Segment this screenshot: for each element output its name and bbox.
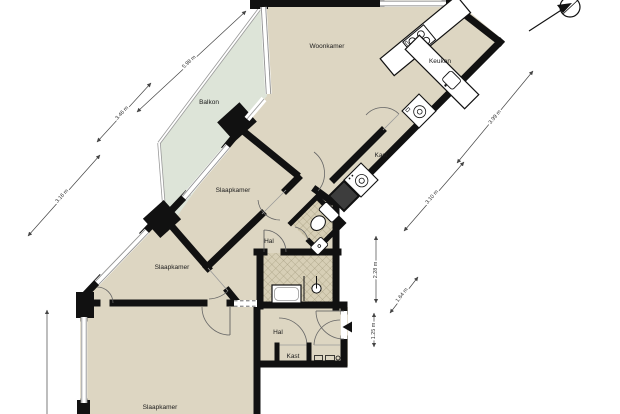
label-hal-lower: Hal: [273, 329, 283, 336]
label-keuken: Keuken: [429, 58, 451, 65]
north-compass-icon: [529, 0, 580, 31]
dim-kitchen-facade: 3.99 m: [488, 109, 504, 126]
floorplan-drawing: 5.98 m 3.46 m 3.16 m 3.99 m 3.10 m 2.28 …: [0, 0, 620, 414]
label-slaapkamer-mid: Slaapkamer: [216, 187, 252, 194]
dim-entrance-depth: 1.25 m: [371, 322, 377, 339]
label-kast-lower: Kast: [286, 353, 299, 360]
label-woonkamer: Woonkamer: [310, 43, 346, 50]
dashed-opening: [234, 300, 257, 307]
dim-corridor-side: 3.10 m: [425, 189, 441, 206]
label-slaapkamer-bottom: Slaapkamer: [143, 404, 179, 411]
dim-balcony-length: 5.98 m: [181, 54, 198, 70]
label-kast-upper: Kast: [374, 152, 387, 159]
dim-bathroom-depth: 2.28 m: [373, 261, 379, 278]
label-slaapkamer-left: Slaapkamer: [155, 264, 191, 271]
dim-left-facade: 3.16 m: [55, 188, 71, 205]
dim-wc-width: 1.64 m: [395, 287, 410, 304]
label-hal-upper: Hal: [264, 238, 274, 245]
kitchen-window: [380, 1, 446, 6]
label-balkon: Balkon: [199, 99, 219, 106]
dim-balcony-width: 3.46 m: [114, 105, 130, 122]
floorplan-page: 5.98 m 3.46 m 3.16 m 3.99 m 3.10 m 2.28 …: [0, 0, 620, 414]
bottom-bedroom-window: [82, 317, 86, 403]
